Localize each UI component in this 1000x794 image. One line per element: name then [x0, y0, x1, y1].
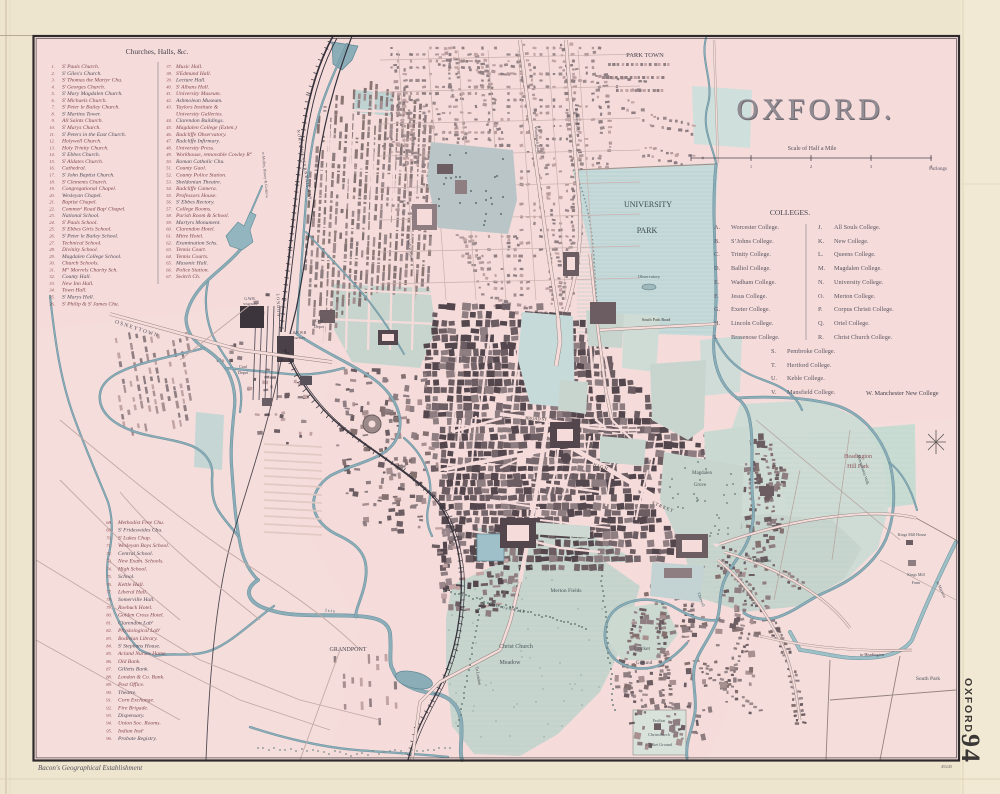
- svg-text:76.: 76.: [106, 582, 112, 587]
- svg-text:40.: 40.: [166, 84, 172, 89]
- svg-text:Indian Inste: Indian Inste: [117, 727, 144, 734]
- svg-text:St Philip & St James Chu.: St Philip & St James Chu.: [62, 300, 119, 307]
- svg-text:I.: I.: [714, 334, 718, 341]
- svg-text:St Ebbes Girls School.: St Ebbes Girls School.: [62, 226, 112, 233]
- svg-text:Radcliffe Camera.: Radcliffe Camera.: [175, 185, 217, 192]
- svg-text:26.: 26.: [49, 234, 55, 239]
- svg-text:23.: 23.: [49, 213, 55, 218]
- svg-text:67.: 67.: [166, 274, 172, 279]
- svg-text:J.: J.: [818, 224, 822, 231]
- svg-text:5.: 5.: [52, 91, 55, 96]
- svg-text:4.: 4.: [52, 84, 55, 89]
- svg-text:St Clements Church.: St Clements Church.: [62, 178, 107, 185]
- svg-text:Bodleian Library.: Bodleian Library.: [118, 636, 158, 642]
- svg-text:E.: E.: [714, 279, 720, 286]
- svg-text:Exeter College.: Exeter College.: [731, 306, 771, 313]
- svg-text:University College.: University College.: [834, 279, 884, 286]
- svg-text:Kings Mill House: Kings Mill House: [898, 532, 927, 537]
- svg-text:Theatre.: Theatre.: [118, 690, 137, 696]
- svg-text:94: 94: [956, 734, 985, 764]
- svg-text:58.: 58.: [166, 213, 172, 218]
- svg-text:56.: 56.: [166, 200, 172, 205]
- svg-text:New Exam. Schools.: New Exam. Schools.: [117, 559, 164, 565]
- svg-text:8.: 8.: [52, 112, 55, 117]
- svg-text:L.&N.W.R: L.&N.W.R: [290, 331, 307, 335]
- svg-text:38.: 38.: [166, 71, 172, 76]
- svg-text:Professors House.: Professors House.: [175, 192, 217, 199]
- svg-text:St Michaels Church.: St Michaels Church.: [62, 97, 107, 104]
- svg-text:45.: 45.: [166, 125, 172, 130]
- svg-text:StEdmund Hall.: StEdmund Hall.: [176, 70, 211, 77]
- svg-text:Kings Mill: Kings Mill: [907, 572, 925, 577]
- svg-text:Q.: Q.: [818, 320, 825, 327]
- svg-text:P.: P.: [818, 306, 823, 313]
- svg-text:88.: 88.: [106, 674, 112, 679]
- svg-text:44.: 44.: [166, 118, 172, 123]
- svg-text:Martyrs Monument.: Martyrs Monument.: [175, 220, 221, 226]
- svg-text:79.: 79.: [106, 605, 112, 610]
- svg-text:County Police Station.: County Police Station.: [176, 173, 227, 179]
- svg-text:52.: 52.: [166, 173, 172, 178]
- svg-text:Magdalen College.: Magdalen College.: [834, 265, 882, 272]
- svg-text:Keble College.: Keble College.: [787, 375, 825, 382]
- svg-text:Merton Fields: Merton Fields: [550, 588, 581, 594]
- svg-text:University Press.: University Press.: [176, 145, 214, 151]
- svg-text:14.: 14.: [49, 152, 55, 157]
- svg-text:54.: 54.: [166, 186, 172, 191]
- svg-text:85.: 85.: [106, 651, 112, 656]
- svg-text:Christ Church College.: Christ Church College.: [834, 334, 893, 341]
- svg-text:Clarendon Hotel.: Clarendon Hotel.: [176, 227, 215, 233]
- svg-text:28.: 28.: [49, 247, 55, 252]
- svg-text:Taylors Institute &: Taylors Institute &: [176, 105, 219, 111]
- svg-text:St Ebbes Church.: St Ebbes Church.: [62, 151, 100, 158]
- svg-text:1: 1: [750, 164, 752, 169]
- svg-text:68.: 68.: [106, 520, 112, 525]
- svg-text:82.: 82.: [106, 628, 112, 633]
- svg-text:30.: 30.: [49, 261, 55, 266]
- svg-text:Gilletts Bank.: Gilletts Bank.: [118, 667, 149, 673]
- svg-text:University Galleries.: University Galleries.: [176, 112, 223, 118]
- svg-text:Mrs Morrels Charity Sch.: Mrs Morrels Charity Sch.: [61, 266, 118, 273]
- svg-text:83.: 83.: [106, 636, 112, 641]
- svg-text:Radcliffe Infirmary.: Radcliffe Infirmary.: [175, 138, 220, 145]
- svg-text:Bacon's Geographical Establish: Bacon's Geographical Establishment: [38, 764, 143, 772]
- svg-text:All Saints Church.: All Saints Church.: [61, 118, 103, 124]
- svg-text:STATION: STATION: [243, 302, 257, 306]
- svg-text:Post Office.: Post Office.: [117, 681, 144, 688]
- svg-text:R.: R.: [818, 334, 824, 341]
- svg-text:24.: 24.: [49, 220, 55, 225]
- svg-text:Churches, Halls, &c.: Churches, Halls, &c.: [126, 47, 189, 56]
- svg-text:66.: 66.: [166, 267, 172, 272]
- svg-text:11.: 11.: [50, 132, 55, 137]
- svg-text:17.: 17.: [49, 173, 55, 178]
- svg-text:Queens College.: Queens College.: [834, 251, 876, 258]
- svg-text:O.: O.: [818, 293, 825, 300]
- svg-text:St Peter le Bailey School.: St Peter le Bailey School.: [62, 233, 118, 240]
- svg-text:Mitre Hotel.: Mitre Hotel.: [175, 234, 203, 240]
- svg-text:70.: 70.: [106, 535, 112, 540]
- svg-text:Depot: Depot: [314, 324, 325, 329]
- svg-text:St Peters in the East Church.: St Peters in the East Church.: [62, 131, 126, 138]
- svg-text:61.: 61.: [166, 234, 172, 239]
- svg-text:86.: 86.: [106, 659, 112, 664]
- svg-text:90.: 90.: [106, 690, 112, 695]
- svg-text:F.: F.: [714, 293, 719, 300]
- svg-text:County Hall.: County Hall.: [62, 274, 91, 280]
- svg-text:21.: 21.: [49, 200, 55, 205]
- svg-text:Cricket: Cricket: [634, 646, 651, 652]
- svg-text:2: 2: [810, 164, 812, 169]
- svg-text:43.: 43.: [166, 105, 172, 110]
- svg-text:St Georges Church.: St Georges Church.: [62, 83, 105, 90]
- svg-text:Technical School.: Technical School.: [62, 240, 102, 246]
- svg-text:A.: A.: [714, 224, 721, 231]
- svg-text:PARK TOWN: PARK TOWN: [626, 52, 664, 59]
- svg-text:20.: 20.: [49, 193, 55, 198]
- svg-text:75.: 75.: [106, 574, 112, 579]
- svg-text:80.: 80.: [106, 613, 112, 618]
- svg-text:42.: 42.: [166, 98, 172, 103]
- svg-text:35.: 35.: [49, 295, 55, 300]
- svg-text:Coal: Coal: [315, 318, 323, 323]
- svg-text:27.: 27.: [49, 240, 55, 245]
- svg-text:Old Bank.: Old Bank.: [118, 659, 141, 665]
- svg-text:12.: 12.: [49, 139, 55, 144]
- svg-text:PARK: PARK: [637, 226, 658, 235]
- svg-text:Divinity School.: Divinity School.: [61, 247, 98, 253]
- svg-text:91.: 91.: [106, 698, 112, 703]
- svg-text:94.: 94.: [106, 721, 112, 726]
- svg-text:Worcester College.: Worcester College.: [731, 224, 780, 231]
- svg-text:89.: 89.: [106, 682, 112, 687]
- svg-text:GRANDPONT: GRANDPONT: [329, 647, 366, 653]
- svg-text:Somerville Hall.: Somerville Hall.: [118, 597, 155, 603]
- svg-text:St Albans Hall.: St Albans Hall.: [176, 83, 209, 90]
- svg-text:Switch Ch.: Switch Ch.: [176, 274, 200, 280]
- svg-text:Roman Catholic Chu.: Roman Catholic Chu.: [175, 159, 225, 165]
- svg-text:Wesleyan Boys School.: Wesleyan Boys School.: [118, 543, 169, 549]
- svg-text:New Inn Hall.: New Inn Hall.: [61, 281, 94, 287]
- svg-text:I s i s: I s i s: [325, 608, 335, 614]
- svg-text:13.: 13.: [49, 145, 55, 150]
- svg-text:Pavilion: Pavilion: [653, 719, 666, 723]
- svg-text:Central School.: Central School.: [118, 551, 153, 557]
- svg-text:High School.: High School.: [117, 566, 147, 572]
- svg-text:46.: 46.: [166, 132, 172, 137]
- svg-text:Town Hall.: Town Hall.: [62, 288, 87, 294]
- svg-text:St Peter le Bailey Church.: St Peter le Bailey Church.: [62, 104, 120, 111]
- svg-text:Union Soc. Rooms.: Union Soc. Rooms.: [118, 721, 161, 727]
- svg-text:University Museum.: University Museum.: [176, 91, 221, 97]
- svg-text:39.: 39.: [166, 78, 172, 83]
- svg-text:L.: L.: [818, 251, 824, 258]
- svg-text:6.: 6.: [52, 98, 55, 103]
- svg-text:St Aldates Church.: St Aldates Church.: [62, 158, 103, 165]
- svg-text:18.: 18.: [49, 179, 55, 184]
- svg-text:77.: 77.: [106, 590, 112, 595]
- svg-text:H.: H.: [714, 320, 721, 327]
- svg-text:33.: 33.: [49, 281, 55, 286]
- svg-text:87.: 87.: [106, 667, 112, 672]
- svg-text:Probate Registry.: Probate Registry.: [117, 736, 157, 742]
- svg-text:15.: 15.: [49, 159, 55, 164]
- svg-text:84.: 84.: [106, 644, 112, 649]
- svg-text:Baptist Chapel.: Baptist Chapel.: [62, 200, 97, 206]
- svg-text:New College.: New College.: [834, 238, 869, 245]
- svg-text:Masonic Hall.: Masonic Hall.: [175, 261, 208, 267]
- svg-text:Meadow: Meadow: [500, 660, 522, 666]
- svg-text:Jesus College.: Jesus College.: [731, 293, 767, 300]
- svg-text:St Thomas the Martyr Chu.: St Thomas the Martyr Chu.: [62, 77, 122, 84]
- svg-text:K.: K.: [818, 238, 825, 245]
- svg-text:Corpus Christi College.: Corpus Christi College.: [834, 306, 894, 313]
- svg-text:G.W.R.: G.W.R.: [244, 297, 255, 301]
- svg-text:64.: 64.: [166, 254, 172, 259]
- svg-text:S.: S.: [771, 348, 777, 355]
- svg-text:Christ Church: Christ Church: [499, 644, 533, 650]
- svg-text:Pembroke College.: Pembroke College.: [787, 348, 836, 355]
- svg-text:National School.: National School.: [61, 213, 100, 219]
- svg-text:71.: 71.: [106, 543, 112, 548]
- svg-text:22.: 22.: [49, 206, 55, 211]
- svg-text:96.: 96.: [106, 736, 112, 741]
- svg-text:W. Manchester New College: W. Manchester New College: [866, 390, 939, 397]
- svg-text:St Pauls Church.: St Pauls Church.: [62, 63, 99, 70]
- svg-text:St Giles's Church.: St Giles's Church.: [62, 70, 102, 77]
- svg-text:St Marys Hall.: St Marys Hall.: [62, 294, 94, 301]
- svg-text:Police Station.: Police Station.: [175, 267, 209, 273]
- svg-text:Mansfield College.: Mansfield College.: [787, 389, 836, 396]
- svg-text:St Stephans House.: St Stephans House.: [118, 643, 160, 650]
- svg-text:to Headington: to Headington: [860, 652, 885, 657]
- svg-text:South Park: South Park: [916, 676, 941, 682]
- svg-text:OXFORD.: OXFORD.: [737, 93, 896, 126]
- svg-text:Kettle Hall.: Kettle Hall.: [117, 582, 144, 588]
- svg-text:Hertford College.: Hertford College.: [787, 362, 832, 369]
- svg-text:N.: N.: [818, 279, 825, 286]
- svg-text:Farm: Farm: [912, 580, 921, 585]
- svg-text:Magdalen College (Exten.): Magdalen College (Exten.): [175, 124, 237, 131]
- svg-text:Clarendon Laby: Clarendon Laby: [118, 619, 154, 626]
- svg-text:34.: 34.: [49, 288, 55, 293]
- svg-text:L O N D O N: L O N D O N: [276, 293, 282, 316]
- svg-text:B.: B.: [714, 238, 720, 245]
- svg-text:29.: 29.: [49, 254, 55, 259]
- svg-text:Oriel College.: Oriel College.: [834, 320, 870, 327]
- svg-text:49.: 49.: [166, 152, 172, 157]
- svg-text:U.: U.: [771, 375, 778, 382]
- svg-text:72.: 72.: [106, 551, 112, 556]
- svg-text:31.: 31.: [49, 267, 55, 272]
- svg-text:7.: 7.: [52, 105, 55, 110]
- svg-text:St Mary Magdalen Church.: St Mary Magdalen Church.: [62, 90, 123, 97]
- svg-text:92.: 92.: [106, 705, 112, 710]
- svg-text:Commerl Road Bapt Chapel.: Commerl Road Bapt Chapel.: [62, 205, 126, 212]
- svg-text:1.: 1.: [52, 64, 55, 69]
- svg-text:Examination Schs.: Examination Schs.: [175, 240, 218, 246]
- svg-text:Coal: Coal: [239, 364, 247, 369]
- svg-text:Clarendon Buildings.: Clarendon Buildings.: [176, 118, 224, 124]
- svg-text:16.: 16.: [49, 166, 55, 171]
- svg-text:Fire Brigade.: Fire Brigade.: [117, 705, 148, 711]
- svg-text:Tennis Court.: Tennis Court.: [176, 247, 206, 253]
- svg-text:Lincoln College.: Lincoln College.: [731, 320, 774, 327]
- svg-text:25.: 25.: [49, 227, 55, 232]
- svg-text:Christchurch: Christchurch: [648, 732, 671, 737]
- svg-text:S’Johns College.: S’Johns College.: [731, 238, 774, 245]
- svg-text:Brasenose College.: Brasenose College.: [731, 334, 780, 341]
- svg-text:D.: D.: [714, 265, 721, 272]
- svg-text:All Souls College.: All Souls College.: [834, 224, 881, 231]
- svg-text:Ground: Ground: [636, 660, 653, 666]
- svg-text:95.: 95.: [106, 728, 112, 733]
- svg-text:OXFORD,: OXFORD,: [962, 678, 974, 738]
- svg-text:Merton College.: Merton College.: [834, 293, 876, 300]
- svg-text:73.: 73.: [106, 559, 112, 564]
- svg-text:Trinity College.: Trinity College.: [731, 251, 771, 258]
- svg-text:Dispensary.: Dispensary.: [117, 713, 145, 719]
- svg-text:69.: 69.: [106, 528, 112, 533]
- svg-text:9.: 9.: [52, 118, 55, 123]
- svg-text:Holywell Church.: Holywell Church.: [61, 139, 102, 145]
- svg-text:Acland Nurses Home.: Acland Nurses Home.: [117, 651, 167, 657]
- svg-text:Cricket Ground: Cricket Ground: [646, 742, 673, 747]
- svg-text:St Lukes Chap.: St Lukes Chap.: [118, 534, 151, 541]
- svg-text:48.: 48.: [166, 145, 172, 150]
- svg-text:Magdalen: Magdalen: [692, 471, 712, 476]
- svg-text:St Pauls School.: St Pauls School.: [62, 219, 98, 226]
- svg-text:Scale of Half a Mile: Scale of Half a Mile: [788, 145, 837, 152]
- svg-text:Balliol College.: Balliol College.: [731, 265, 771, 272]
- svg-text:49245: 49245: [941, 764, 953, 769]
- svg-text:62.: 62.: [166, 240, 172, 245]
- svg-text:St John Baptist Church.: St John Baptist Church.: [62, 172, 115, 179]
- svg-text:College Rooms.: College Rooms.: [176, 206, 211, 212]
- svg-text:G.: G.: [714, 306, 721, 313]
- svg-text:Workhouse, removable Cowley Rd: Workhouse, removable Cowley Rd: [176, 151, 252, 158]
- svg-text:Furlongs: Furlongs: [929, 167, 947, 172]
- svg-text:60.: 60.: [166, 227, 172, 232]
- svg-text:STATION: STATION: [291, 336, 305, 340]
- svg-text:School.: School.: [118, 574, 135, 580]
- svg-text:19.: 19.: [49, 186, 55, 191]
- svg-text:Wesleyan Chapel.: Wesleyan Chapel.: [62, 193, 102, 199]
- svg-text:Magdalen College School.: Magdalen College School.: [61, 254, 122, 260]
- svg-text:M.: M.: [818, 265, 826, 272]
- svg-text:T.: T.: [771, 362, 776, 369]
- svg-text:65.: 65.: [166, 261, 172, 266]
- svg-text:St Marys Church.: St Marys Church.: [62, 124, 101, 131]
- svg-text:South Park Road: South Park Road: [642, 317, 671, 322]
- svg-text:53.: 53.: [166, 179, 172, 184]
- svg-text:10.: 10.: [49, 125, 55, 130]
- svg-text:Ashmolean Museum.: Ashmolean Museum.: [175, 98, 223, 104]
- svg-text:Corn Exchange.: Corn Exchange.: [118, 698, 154, 704]
- svg-text:UNIVERSITY: UNIVERSITY: [624, 200, 672, 209]
- svg-text:3.: 3.: [52, 78, 55, 83]
- svg-text:Holy Trinity Church.: Holy Trinity Church.: [61, 145, 109, 151]
- svg-text:Depot: Depot: [238, 370, 249, 375]
- svg-text:Liberal Hall.: Liberal Hall.: [117, 590, 147, 596]
- svg-text:Wadham College.: Wadham College.: [731, 279, 776, 286]
- svg-text:57.: 57.: [166, 206, 172, 211]
- svg-text:Meadow: Meadow: [752, 558, 771, 564]
- svg-text:74.: 74.: [106, 566, 112, 571]
- svg-text:50.: 50.: [166, 159, 172, 164]
- svg-text:93.: 93.: [106, 713, 112, 718]
- svg-text:81.: 81.: [106, 620, 112, 625]
- svg-text:63.: 63.: [166, 247, 172, 252]
- svg-text:55.: 55.: [166, 193, 172, 198]
- svg-text:2.: 2.: [52, 71, 55, 76]
- svg-text:Sheldonian Theatre.: Sheldonian Theatre.: [176, 179, 221, 185]
- svg-text:51.: 51.: [166, 166, 172, 171]
- svg-text:St Martins Tower.: St Martins Tower.: [62, 111, 101, 118]
- svg-text:78.: 78.: [106, 597, 112, 602]
- svg-text:Observatory: Observatory: [638, 274, 661, 279]
- svg-text:Congregational Chapel.: Congregational Chapel.: [62, 186, 116, 192]
- svg-text:Parish Room & School.: Parish Room & School.: [175, 213, 229, 219]
- svg-text:59.: 59.: [166, 220, 172, 225]
- svg-text:London & Co. Bank.: London & Co. Bank.: [117, 674, 164, 680]
- svg-text:Methodist Free Chu.: Methodist Free Chu.: [117, 520, 164, 526]
- svg-text:47.: 47.: [166, 139, 172, 144]
- svg-text:41.: 41.: [166, 91, 172, 96]
- svg-text:37.: 37.: [166, 64, 172, 69]
- svg-text:32.: 32.: [49, 274, 55, 279]
- svg-text:Physiological Laby: Physiological Laby: [117, 627, 161, 634]
- svg-text:County Gaol.: County Gaol.: [176, 166, 206, 172]
- svg-text:Roebuck Hotel.: Roebuck Hotel.: [117, 605, 152, 611]
- svg-text:V.: V.: [771, 389, 777, 396]
- svg-text:Tennis Courts.: Tennis Courts.: [176, 254, 208, 260]
- svg-text:C.: C.: [714, 251, 720, 258]
- svg-text:36.: 36.: [49, 301, 55, 306]
- svg-text:Radcliffe Observatory.: Radcliffe Observatory.: [175, 131, 227, 138]
- svg-text:St Frideswides Chu.: St Frideswides Chu.: [118, 527, 163, 534]
- svg-text:St Ebbes Rectory.: St Ebbes Rectory.: [176, 199, 215, 206]
- svg-text:Grove: Grove: [694, 483, 707, 488]
- svg-text:Golden Cross Hotel.: Golden Cross Hotel.: [118, 613, 164, 619]
- svg-text:COLLEGES.: COLLEGES.: [770, 208, 810, 217]
